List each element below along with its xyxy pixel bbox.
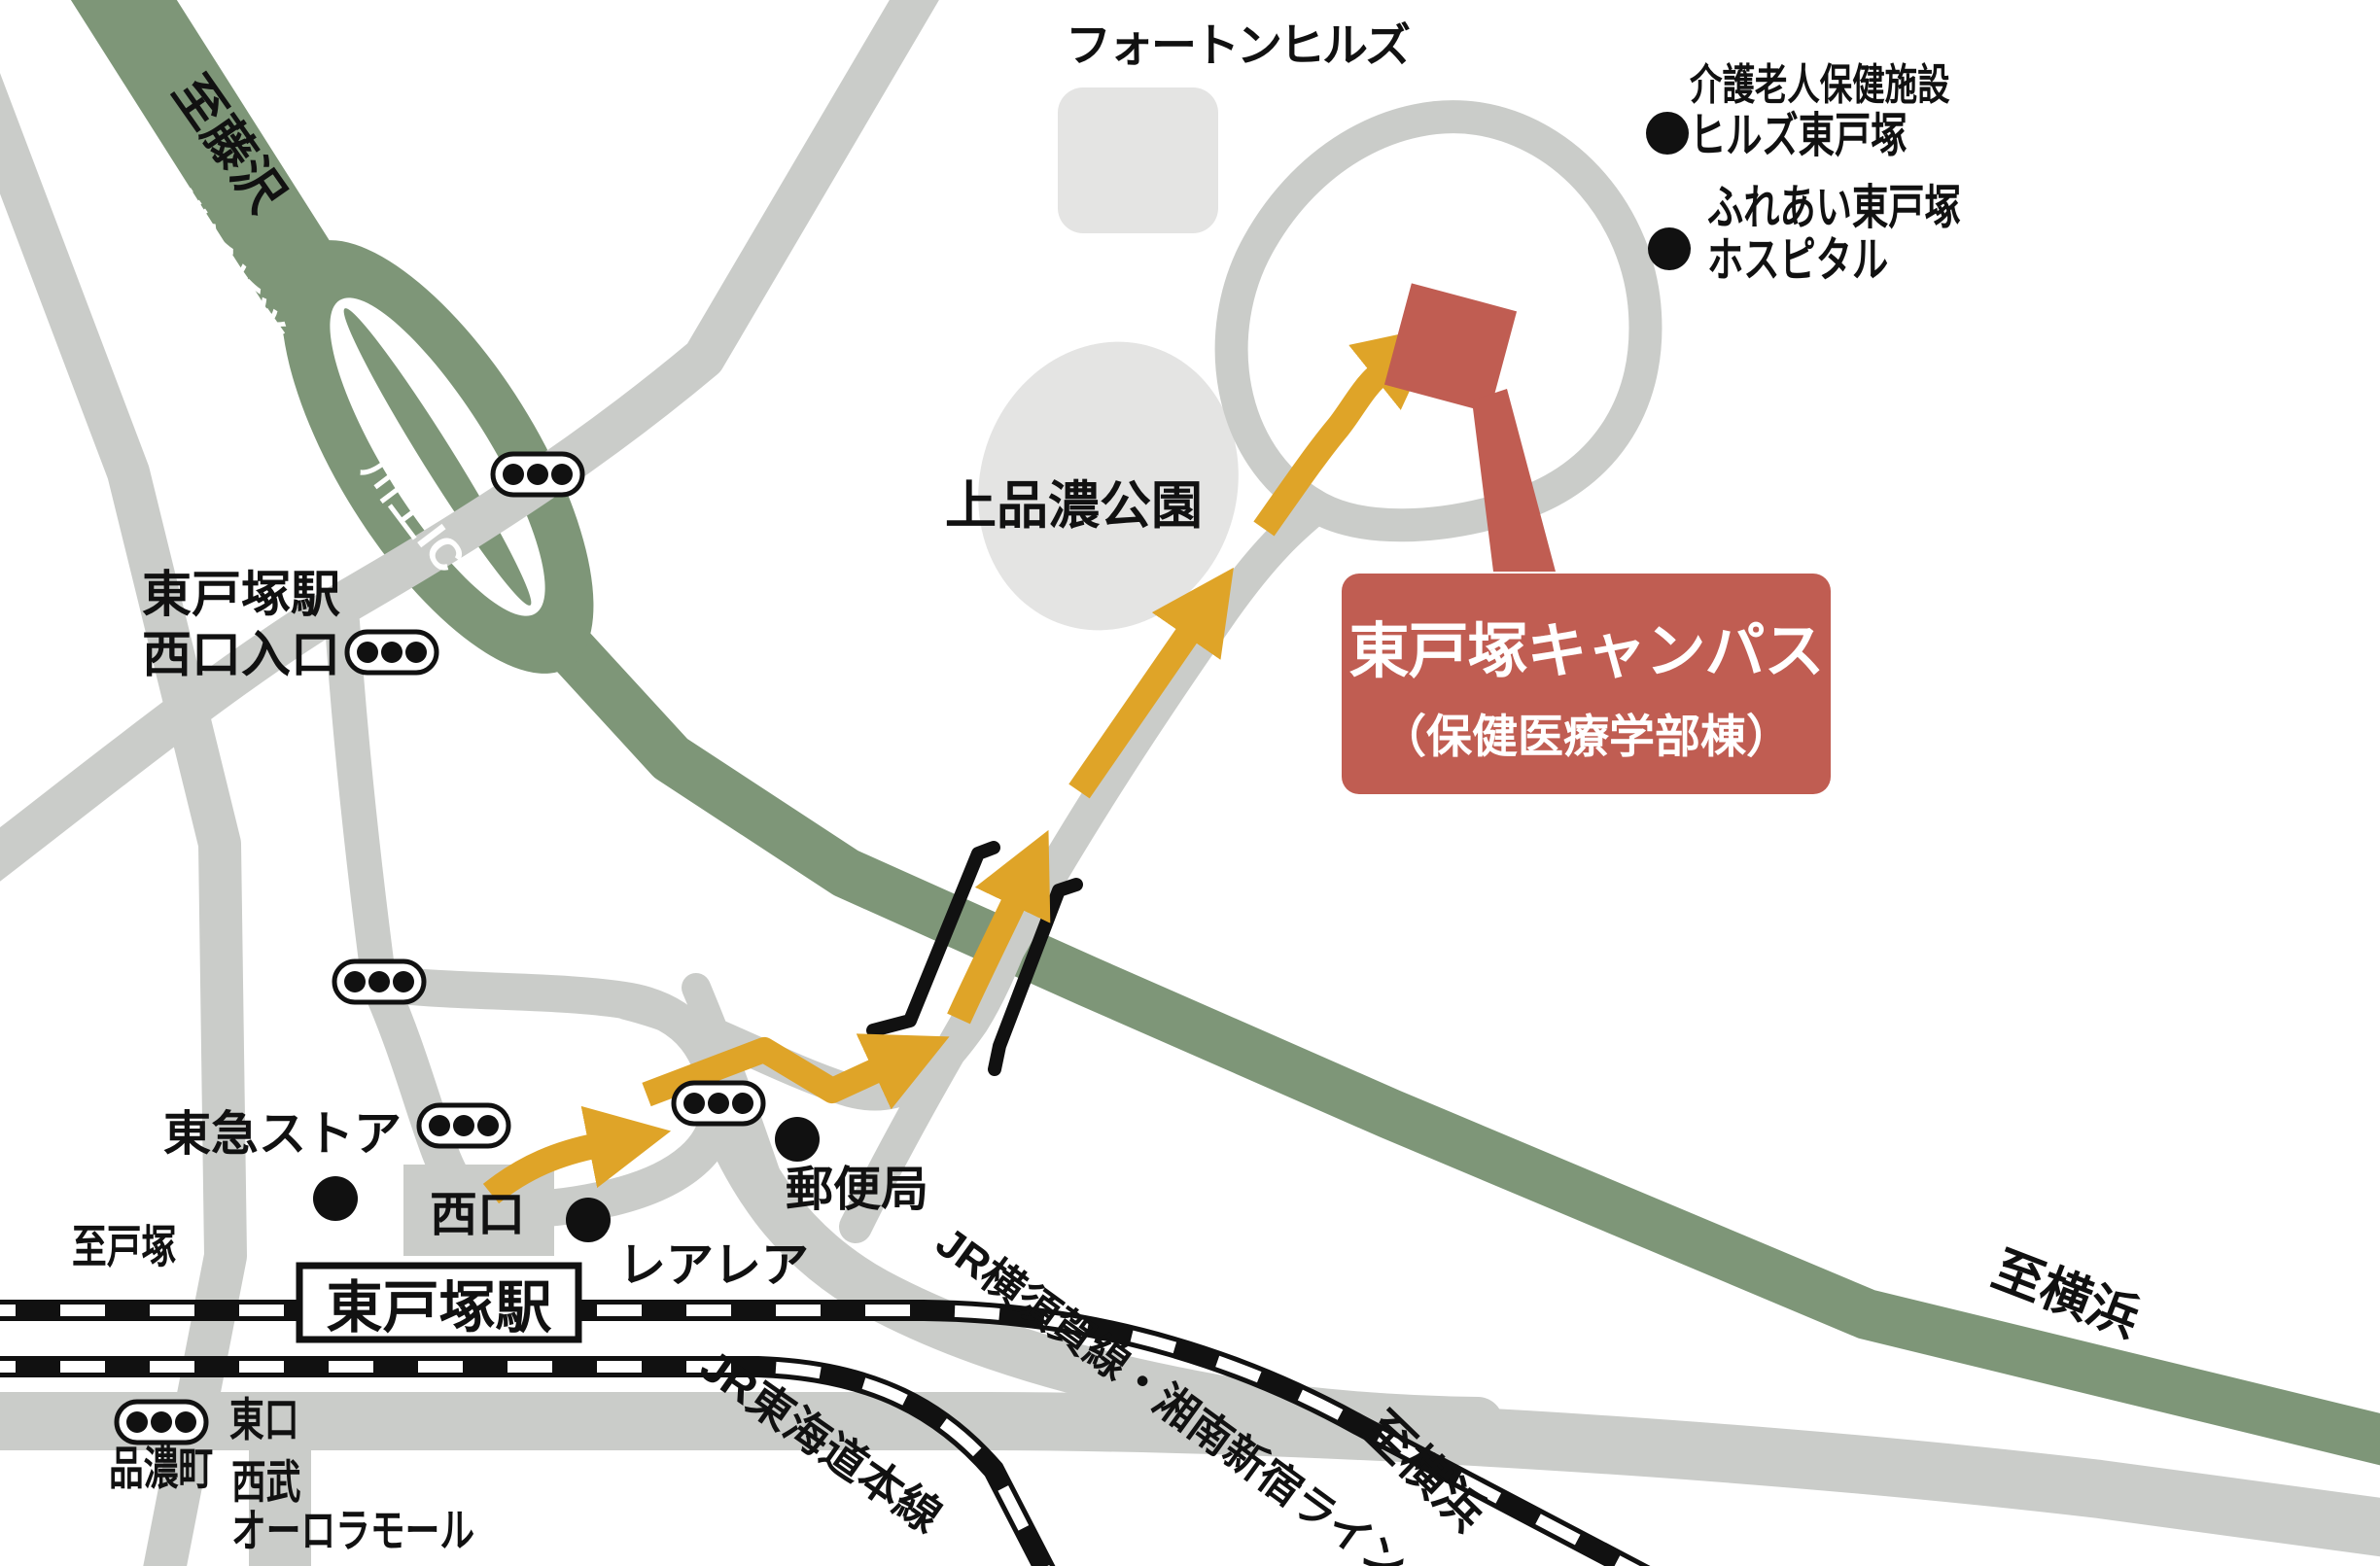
- traffic-signal-icon: [419, 1105, 508, 1146]
- destination-title: 東戸塚キャンパス: [1348, 602, 1823, 689]
- to-totsuka-label: 至戸塚: [72, 1223, 176, 1272]
- station-approach-road: [342, 622, 379, 984]
- west-gate-label: 西口: [430, 1190, 525, 1241]
- photon-hills-label: フォートンヒルズ: [1066, 21, 1408, 71]
- west-entrance-label-line1: 東戸塚駅: [142, 568, 340, 621]
- post-office-label: 郵便局: [786, 1165, 928, 1216]
- tokyu-store-label: 東急ストア: [163, 1109, 402, 1161]
- tokyu-store-dot: [313, 1176, 358, 1221]
- hospital-label-line1: ふれあい東戸塚: [1707, 183, 1961, 234]
- elder-facility-label-line1: 介護老人保健施設: [1690, 62, 1950, 109]
- traffic-signal-icon: [493, 454, 582, 495]
- east-gate-label: 東口: [229, 1396, 298, 1445]
- traffic-signal-icon: [334, 961, 424, 1002]
- traffic-signal-icon: [674, 1083, 763, 1124]
- rearea-label: レアレア: [618, 1240, 809, 1292]
- post-office-dot: [775, 1117, 820, 1162]
- access-map: 至藤沢 横浜新道 川上IC フォートンヒルズ 介護老人保健施設 ヒルズ東戸塚 ふ…: [0, 0, 2380, 1566]
- joshinno-park-label: 上品濃公園: [945, 478, 1203, 534]
- shinano-town-label: 品濃町: [109, 1444, 213, 1494]
- traffic-signal-icon: [117, 1402, 206, 1443]
- traffic-signal-icon: [347, 632, 437, 673]
- destination-subtitle: （保健医療学部棟）: [1381, 699, 1792, 766]
- elder-facility-dot: [1646, 112, 1689, 155]
- rearea-dot: [566, 1198, 611, 1242]
- elder-facility-label-line2: ヒルズ東戸塚: [1690, 111, 1907, 162]
- hospital-dot: [1648, 227, 1691, 270]
- photon-hills-building: [1058, 87, 1218, 233]
- station-name-label: 東戸塚駅: [299, 1266, 578, 1340]
- west-entrance-label-line2: 西口入口: [142, 628, 340, 681]
- seibu-label-line1: 西武: [231, 1458, 300, 1508]
- seibu-label-line2: オーロラモール: [231, 1507, 474, 1556]
- destination-callout: 東戸塚キャンパス （保健医療学部棟）: [1342, 574, 1831, 794]
- hospital-label-line2: ホスピタル: [1707, 235, 1888, 287]
